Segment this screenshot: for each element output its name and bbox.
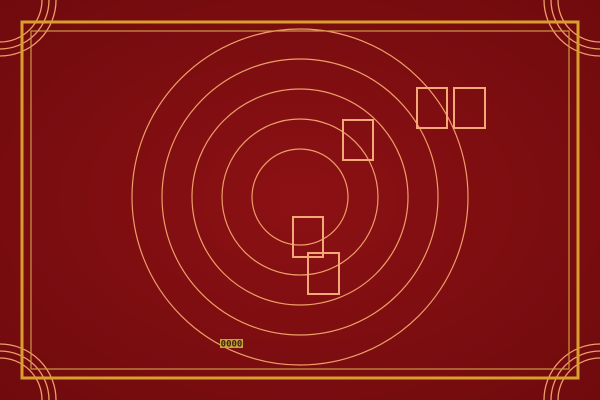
- score-counter: 0000: [220, 339, 243, 350]
- scene-svg: 0000: [0, 0, 600, 400]
- score-counter-text: 0000: [221, 340, 243, 350]
- background: [0, 0, 600, 400]
- game-canvas[interactable]: 0000: [0, 0, 600, 400]
